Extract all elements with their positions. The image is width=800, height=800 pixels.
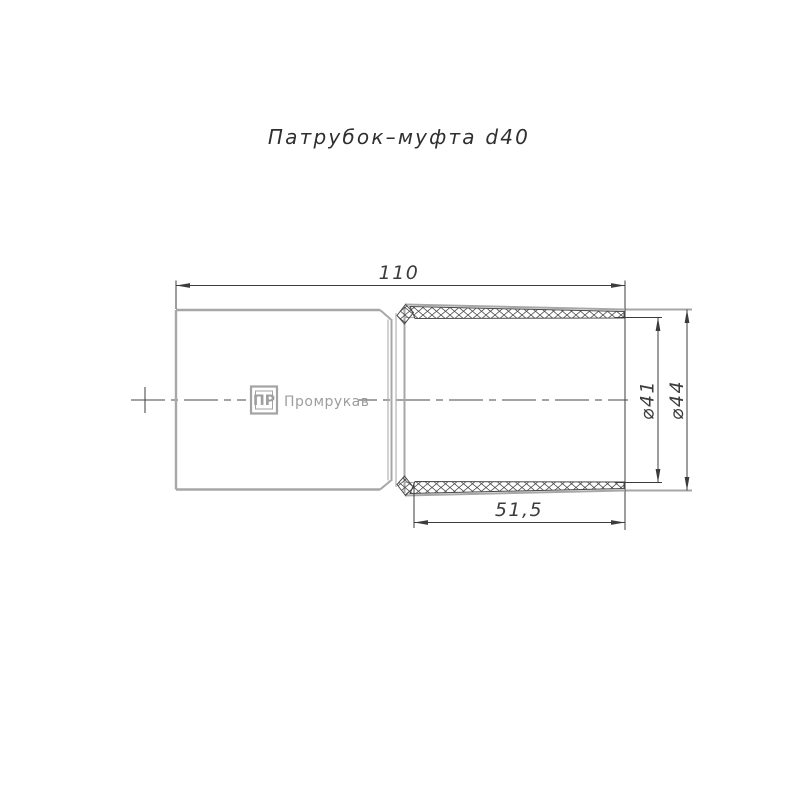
- arrowhead-left: [176, 283, 190, 288]
- arrowhead-left: [414, 520, 428, 525]
- technical-drawing: Патрубок–муфта d40: [0, 0, 800, 800]
- drawing-title: Патрубок–муфта d40: [268, 125, 530, 149]
- drawing-canvas: Патрубок–муфта d40: [0, 0, 800, 800]
- arrowhead-bottom: [685, 477, 690, 491]
- dimension-text-d41: ⌀41: [637, 380, 659, 420]
- arrowhead-right: [611, 283, 625, 288]
- dimension-text-51-5: 51,5: [495, 499, 543, 521]
- brand-logo: ПР Промрукав: [246, 382, 370, 418]
- brand-name: Промрукав: [284, 394, 370, 410]
- dimension-text-110: 110: [379, 262, 420, 284]
- arrowhead-bottom: [656, 469, 661, 483]
- arrowhead-right: [611, 520, 625, 525]
- dimension-text-d44: ⌀44: [666, 380, 688, 420]
- arrowhead-top: [656, 318, 661, 332]
- dimension-diameter-outer: ⌀44: [666, 310, 689, 491]
- logo-monogram: ПР: [253, 393, 275, 409]
- arrowhead-top: [685, 310, 690, 324]
